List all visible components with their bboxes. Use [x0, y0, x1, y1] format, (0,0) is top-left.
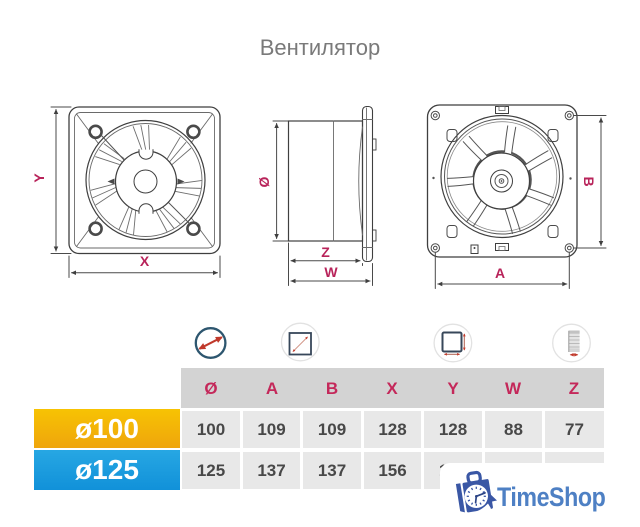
svg-text:Z: Z — [321, 244, 330, 260]
svg-text:X: X — [140, 253, 150, 269]
svg-text:W: W — [324, 264, 338, 280]
svg-text:B: B — [581, 176, 597, 186]
svg-text:Y: Y — [31, 173, 47, 183]
svg-text:Ø: Ø — [256, 176, 272, 187]
svg-text:A: A — [495, 265, 505, 281]
